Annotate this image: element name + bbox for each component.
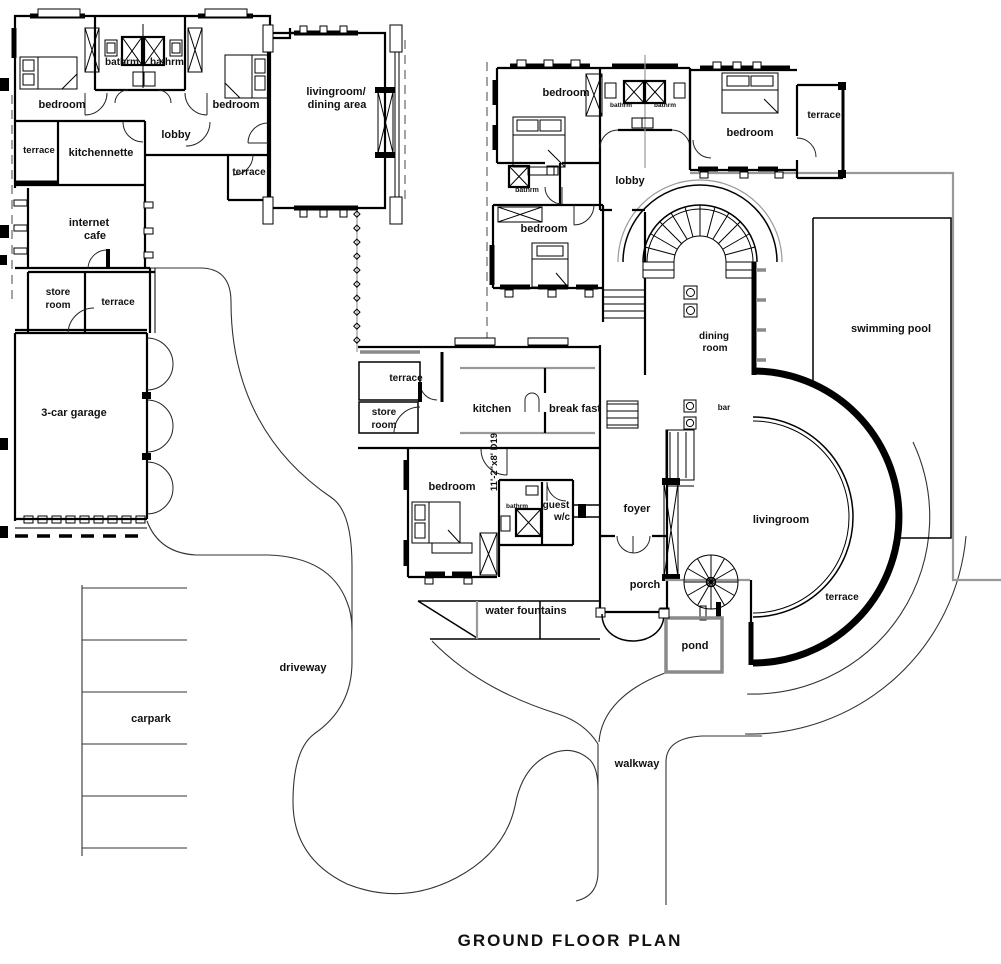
- foyer-passage: [573, 505, 600, 517]
- label-pond: pond: [682, 640, 709, 652]
- label-lobby-main: lobby: [615, 175, 645, 187]
- floor-plan-page: bedroom bedroom bathrm bathrm lobby terr…: [0, 0, 1001, 964]
- terrace-ring-outer: [745, 536, 966, 734]
- label-bathrm-lw-2: bathrm: [150, 57, 184, 68]
- floor-plan-title: GROUND FLOOR PLAN: [458, 931, 683, 950]
- sink-icon: [632, 118, 653, 128]
- toilet-icon: [501, 516, 510, 531]
- bed-icon: [225, 55, 268, 98]
- label-terrace-main-right: terrace: [807, 110, 841, 121]
- label-break-fast: break fast: [549, 403, 601, 415]
- property-dashed-lines: [12, 40, 487, 345]
- label-driveway: driveway: [279, 662, 327, 674]
- label-kitchennette: kitchennette: [69, 147, 134, 159]
- label-store-room-k-1: store: [372, 407, 397, 418]
- kitchen-door-arcs: [394, 383, 437, 433]
- center-window-bands: [294, 33, 358, 208]
- label-bedroom-main-tl: bedroom: [542, 87, 589, 99]
- path-pond-to-walkway: [599, 673, 665, 742]
- foyer-door-slab: [578, 504, 586, 518]
- wardrobe-icon: [85, 28, 99, 72]
- label-terrace-curved: terrace: [825, 592, 859, 603]
- label-store-room-lw-1: store: [46, 287, 71, 298]
- left-wing: [14, 9, 301, 536]
- label-dining-room-2: room: [703, 343, 728, 354]
- grand-staircase: [618, 180, 782, 278]
- walkway-right-edge: [666, 736, 762, 905]
- driveway-edge-garage: [147, 521, 352, 630]
- spiral-staircase: [684, 555, 738, 620]
- center-side-lines: [395, 52, 399, 197]
- label-store-room-lw-2: room: [46, 300, 71, 311]
- label-bathrm-lw-1: bathrm: [105, 57, 139, 68]
- main-tl-window-bands: [492, 66, 598, 287]
- site-roads: [0, 40, 1001, 905]
- label-terrace-lw-left: terrace: [23, 145, 55, 156]
- label-bathrm-main-2: bathrm: [654, 102, 676, 109]
- label-lobby-lw: lobby: [161, 129, 191, 141]
- bed-icon: [532, 243, 568, 287]
- column-icon: [684, 304, 697, 317]
- path-fountain-to-walkway: [432, 641, 598, 744]
- kitchen-window-ticks: [455, 338, 568, 345]
- breakfast-niche: [525, 393, 539, 412]
- label-livingroom-dining-1: livingroom/: [306, 86, 365, 98]
- label-kitchen: kitchen: [473, 403, 512, 415]
- label-store-room-k-2: room: [372, 420, 397, 431]
- label-guest-wc-1: guest: [543, 500, 570, 511]
- porch-steps: [602, 614, 664, 641]
- label-carpark: carpark: [131, 713, 172, 725]
- left-wing-door-arcs: [68, 90, 253, 334]
- sink-icon: [133, 72, 155, 86]
- window-stubs: [14, 9, 247, 258]
- center-window-ticks: [263, 25, 402, 224]
- label-walkway: walkway: [614, 758, 661, 770]
- label-foyer: foyer: [624, 503, 652, 515]
- toilet-icon: [105, 40, 117, 56]
- center-door-arc: [248, 123, 268, 143]
- label-bathrm-main-1: bathrm: [610, 102, 632, 109]
- dining-window-ticks: [756, 270, 766, 360]
- shower-icon: [516, 509, 541, 536]
- shower-icon: [645, 81, 665, 103]
- toilet-icon: [605, 83, 616, 98]
- wardrobe-icon: [498, 207, 542, 222]
- label-terrace-lw-low: terrace: [101, 297, 135, 308]
- porch-double-doors: [617, 536, 650, 553]
- label-garage: 3-car garage: [41, 407, 106, 419]
- label-livingroom-dining-2: dining area: [308, 99, 368, 111]
- label-bathrm-bottom: bathrm: [506, 503, 528, 510]
- wardrobe-icon: [480, 533, 497, 575]
- stairs-straight-upper: [603, 290, 645, 318]
- label-dining-room-1: dining: [699, 331, 729, 342]
- label-bedroom-bottom: bedroom: [428, 481, 475, 493]
- shower-icon: [509, 166, 529, 187]
- neighbor-wall-stubs: [0, 78, 9, 538]
- bottom-block-bands: [406, 460, 472, 574]
- column-icon: [684, 400, 696, 412]
- main-tr-bands: [698, 68, 790, 169]
- swimming-pool: [813, 218, 951, 538]
- label-terrace-kitchen: terrace: [389, 373, 423, 384]
- stairs-bar: [607, 401, 694, 486]
- label-terrace-lw-right: terrace: [232, 167, 266, 178]
- label-bedroom-main-mid: bedroom: [520, 223, 567, 235]
- toilet-icon: [674, 83, 685, 98]
- label-dimension-note: 11'-2"x8' D19: [489, 433, 500, 491]
- bed-icon: [20, 57, 77, 89]
- label-bedroom-lw-left: bedroom: [38, 99, 85, 111]
- floor-plan-drawing: bedroom bedroom bathrm bathrm lobby terr…: [0, 0, 1001, 964]
- site-boundary: [690, 173, 1001, 580]
- bed-icon: [412, 502, 472, 553]
- shower-icon: [624, 81, 644, 103]
- label-porch: porch: [630, 579, 661, 591]
- label-guest-wc-2: w/c: [553, 512, 571, 523]
- chain-fence: [354, 211, 360, 352]
- label-internet-cafe-1: internet: [69, 217, 110, 229]
- label-livingroom: livingroom: [753, 514, 809, 526]
- terrace-door-slab: [418, 382, 422, 402]
- center-walls: [268, 33, 385, 208]
- bed-icon: [722, 73, 778, 113]
- wardrobe-icon: [188, 28, 202, 72]
- label-bathrm-main-3: bathrm: [515, 187, 539, 194]
- main-tr-door-arcs: [693, 138, 816, 158]
- window-x-panel: [662, 478, 680, 581]
- room-labels: bedroom bedroom bathrm bathrm lobby terr…: [23, 57, 931, 950]
- label-bedroom-main-tr: bedroom: [726, 127, 773, 139]
- column-icon: [684, 417, 696, 429]
- sink-icon: [526, 486, 538, 495]
- label-bedroom-lw-right: bedroom: [212, 99, 259, 111]
- toilet-icon: [170, 40, 182, 56]
- label-bar: bar: [718, 403, 730, 412]
- label-water-fountains: water fountains: [484, 605, 566, 617]
- label-internet-cafe-2: cafe: [84, 230, 106, 242]
- bottom-window-ticks: [425, 578, 472, 584]
- left-wing-walls: [15, 16, 270, 521]
- column-icon: [684, 286, 697, 299]
- kitchen-counters: [460, 368, 595, 433]
- label-swimming-pool: swimming pool: [851, 323, 931, 335]
